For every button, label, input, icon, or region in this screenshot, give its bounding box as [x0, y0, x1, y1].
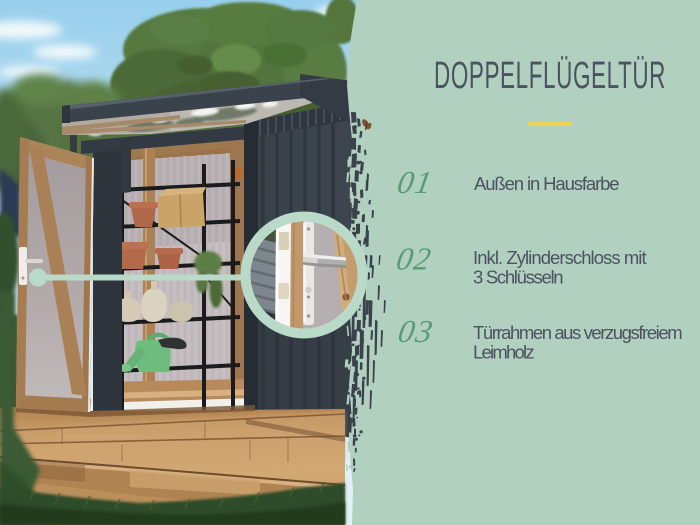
svg-text:Leimholz: Leimholz: [473, 342, 535, 363]
svg-text:Türrahmen aus verzugsfreiem: Türrahmen aus verzugsfreiem: [473, 322, 683, 343]
svg-text:01: 01: [395, 164, 436, 200]
svg-text:DOPPELFLÜGELTÜR: DOPPELFLÜGELTÜR: [434, 55, 666, 97]
svg-text:3 Schlüsseln: 3 Schlüsseln: [473, 267, 564, 288]
svg-text:02: 02: [394, 241, 435, 277]
svg-text:Außen in Hausfarbe: Außen in Hausfarbe: [474, 173, 620, 194]
svg-text:03: 03: [396, 313, 437, 349]
svg-text:Inkl. Zylinderschloss mit: Inkl. Zylinderschloss mit: [473, 247, 647, 268]
